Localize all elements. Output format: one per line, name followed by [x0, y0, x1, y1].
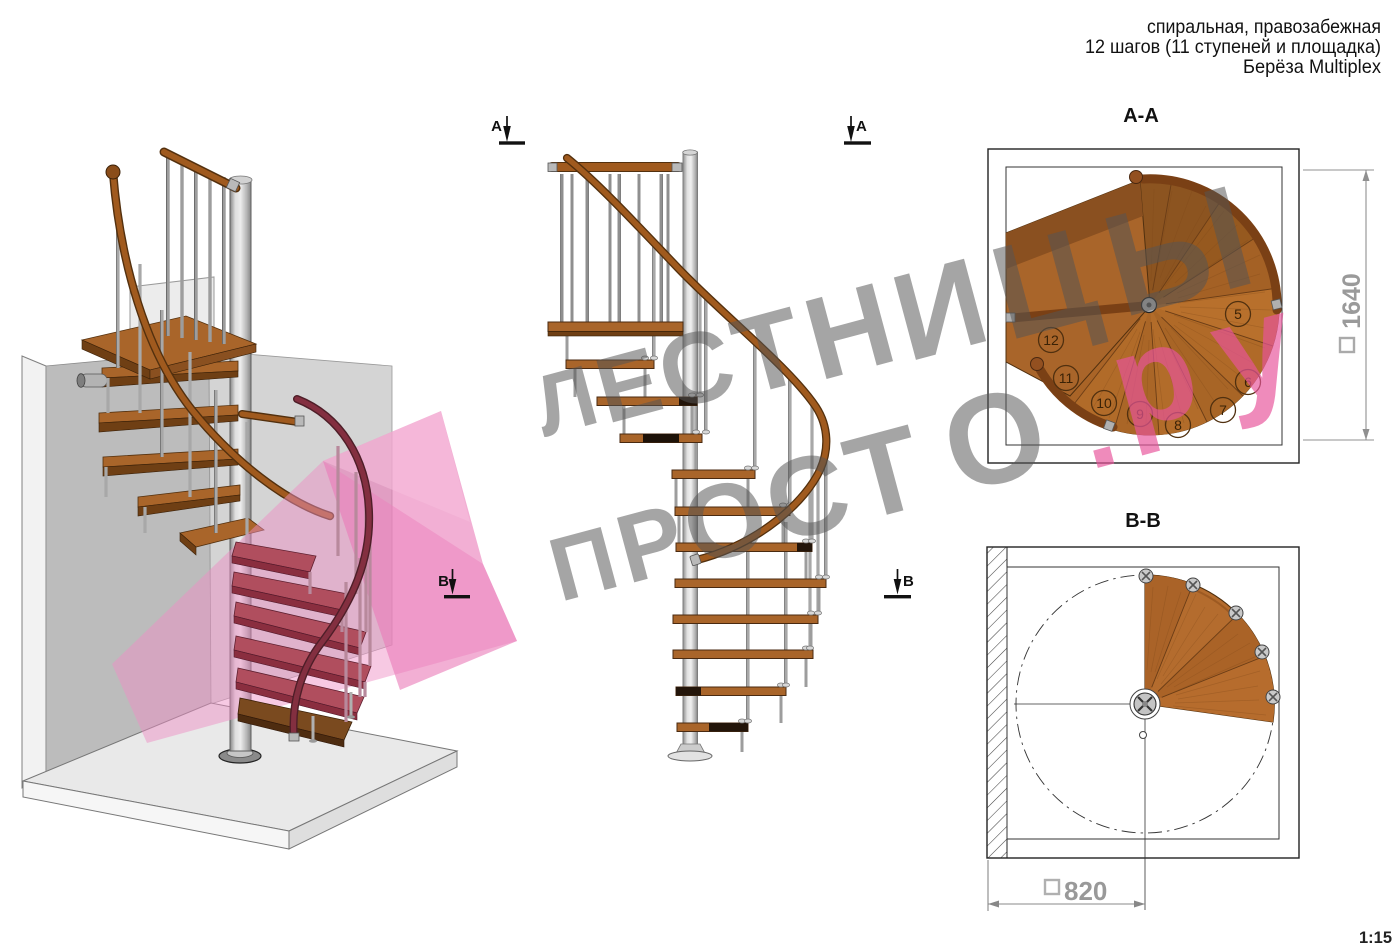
svg-text:1640: 1640: [1338, 273, 1366, 329]
svg-text:B-B: B-B: [1125, 510, 1161, 532]
svg-text:A-A: A-A: [1123, 105, 1159, 127]
svg-text:Берёза Multiplex: Берёза Multiplex: [1243, 56, 1381, 78]
svg-text:A: A: [856, 118, 867, 135]
svg-text:820: 820: [1064, 876, 1107, 906]
svg-text:12 шагов (11 ступеней и площад: 12 шагов (11 ступеней и площадка): [1085, 36, 1381, 58]
svg-text:1:15: 1:15: [1359, 929, 1392, 943]
svg-text:B: B: [438, 573, 449, 590]
svg-text:A: A: [491, 118, 502, 135]
svg-text:спиральная, правозабежная: спиральная, правозабежная: [1147, 16, 1381, 38]
svg-text:B: B: [903, 573, 914, 590]
svg-text:7: 7: [1219, 402, 1227, 418]
